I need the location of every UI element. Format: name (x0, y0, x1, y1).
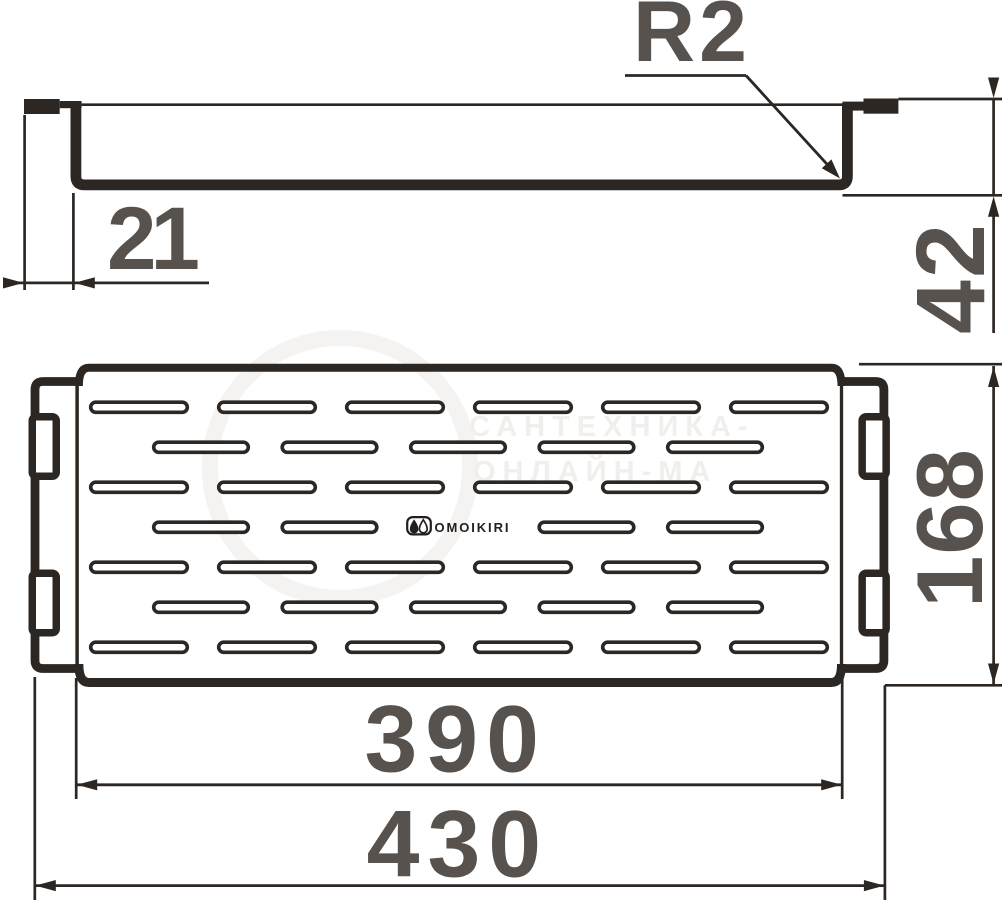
svg-text:21: 21 (107, 188, 198, 288)
svg-text:R2: R2 (633, 0, 751, 80)
svg-text:САНТЕХНИКА-: САНТЕХНИКА- (469, 411, 755, 443)
svg-text:168: 168 (897, 448, 1002, 608)
svg-text:430: 430 (367, 792, 550, 898)
svg-text:OMOIKIRI: OMOIKIRI (435, 520, 511, 535)
svg-text:390: 390 (364, 687, 547, 793)
svg-text:42: 42 (896, 222, 1005, 334)
